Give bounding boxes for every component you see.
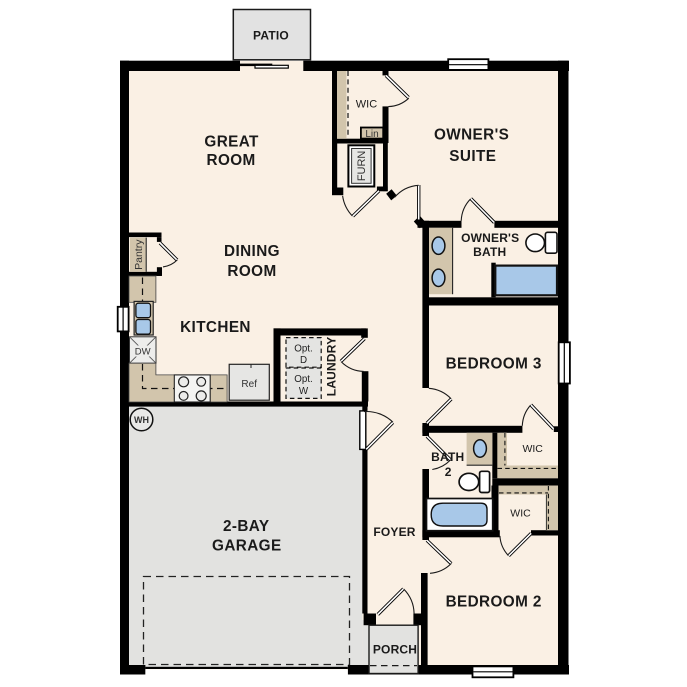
svg-text:FOYER: FOYER (373, 525, 415, 539)
svg-text:W: W (299, 386, 309, 397)
svg-text:BATH: BATH (473, 245, 506, 259)
svg-text:GREAT: GREAT (204, 133, 259, 150)
svg-text:WH: WH (134, 415, 149, 425)
svg-text:KITCHEN: KITCHEN (180, 319, 251, 336)
svg-text:ROOM: ROOM (227, 263, 276, 280)
svg-text:GARAGE: GARAGE (212, 537, 282, 554)
svg-text:ROOM: ROOM (207, 152, 256, 169)
svg-text:Opt.: Opt. (294, 344, 313, 355)
svg-text:D: D (300, 355, 307, 366)
svg-text:OWNER'S: OWNER'S (461, 231, 519, 245)
svg-text:Ref: Ref (241, 379, 257, 390)
svg-text:DW: DW (135, 347, 151, 358)
svg-text:SUITE: SUITE (449, 148, 496, 165)
svg-text:WIC: WIC (510, 508, 531, 520)
svg-text:OWNER'S: OWNER'S (434, 126, 509, 143)
svg-text:Pantry: Pantry (133, 239, 145, 270)
svg-text:DINING: DINING (224, 243, 280, 260)
svg-text:BEDROOM 3: BEDROOM 3 (446, 356, 542, 373)
svg-text:FURN: FURN (356, 151, 368, 182)
svg-text:WIC: WIC (356, 99, 377, 111)
svg-text:2: 2 (445, 465, 452, 479)
svg-text:2-BAY: 2-BAY (223, 518, 270, 535)
svg-text:LAUNDRY: LAUNDRY (325, 337, 339, 397)
svg-text:Opt.: Opt. (294, 374, 313, 385)
svg-text:PORCH: PORCH (373, 643, 417, 657)
svg-text:BATH: BATH (431, 450, 464, 464)
svg-text:PATIO: PATIO (253, 29, 289, 43)
svg-text:BEDROOM 2: BEDROOM 2 (446, 593, 542, 610)
svg-text:Lin: Lin (365, 129, 378, 140)
svg-text:WIC: WIC (522, 443, 543, 455)
